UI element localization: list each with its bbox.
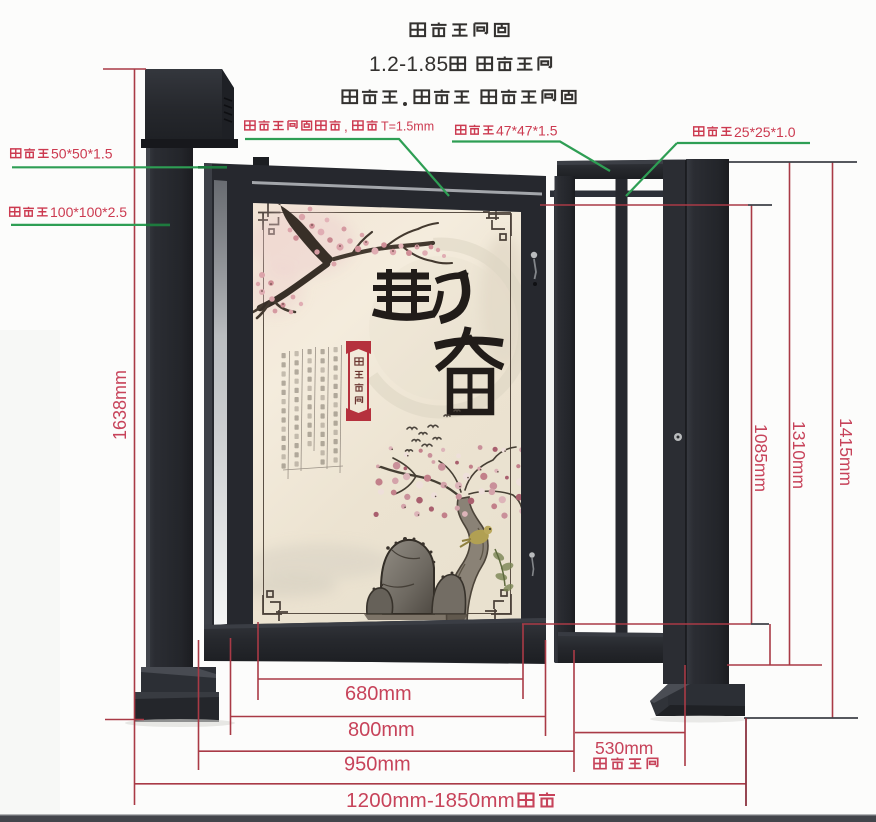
svg-text:1638mm: 1638mm bbox=[110, 370, 130, 440]
svg-text:1415mm: 1415mm bbox=[836, 418, 856, 486]
svg-text:1310mm: 1310mm bbox=[789, 421, 809, 489]
svg-text:50*50*1.5: 50*50*1.5 bbox=[51, 146, 113, 162]
svg-text:800mm: 800mm bbox=[348, 719, 415, 741]
svg-text:1200mm-1850mm: 1200mm-1850mm bbox=[346, 789, 515, 812]
svg-text:1085mm: 1085mm bbox=[751, 424, 771, 492]
svg-text:530mm: 530mm bbox=[595, 738, 653, 758]
svg-text:950mm: 950mm bbox=[344, 754, 411, 776]
svg-text:T=1.5mm: T=1.5mm bbox=[381, 120, 434, 134]
svg-text:25*25*1.0: 25*25*1.0 bbox=[734, 124, 796, 140]
svg-text:47*47*1.5: 47*47*1.5 bbox=[496, 123, 558, 139]
svg-text:1.2-1.85: 1.2-1.85 bbox=[369, 53, 448, 76]
svg-text:680mm: 680mm bbox=[345, 683, 412, 705]
svg-text:,: , bbox=[344, 119, 348, 134]
svg-text:100*100*2.5: 100*100*2.5 bbox=[50, 204, 127, 220]
